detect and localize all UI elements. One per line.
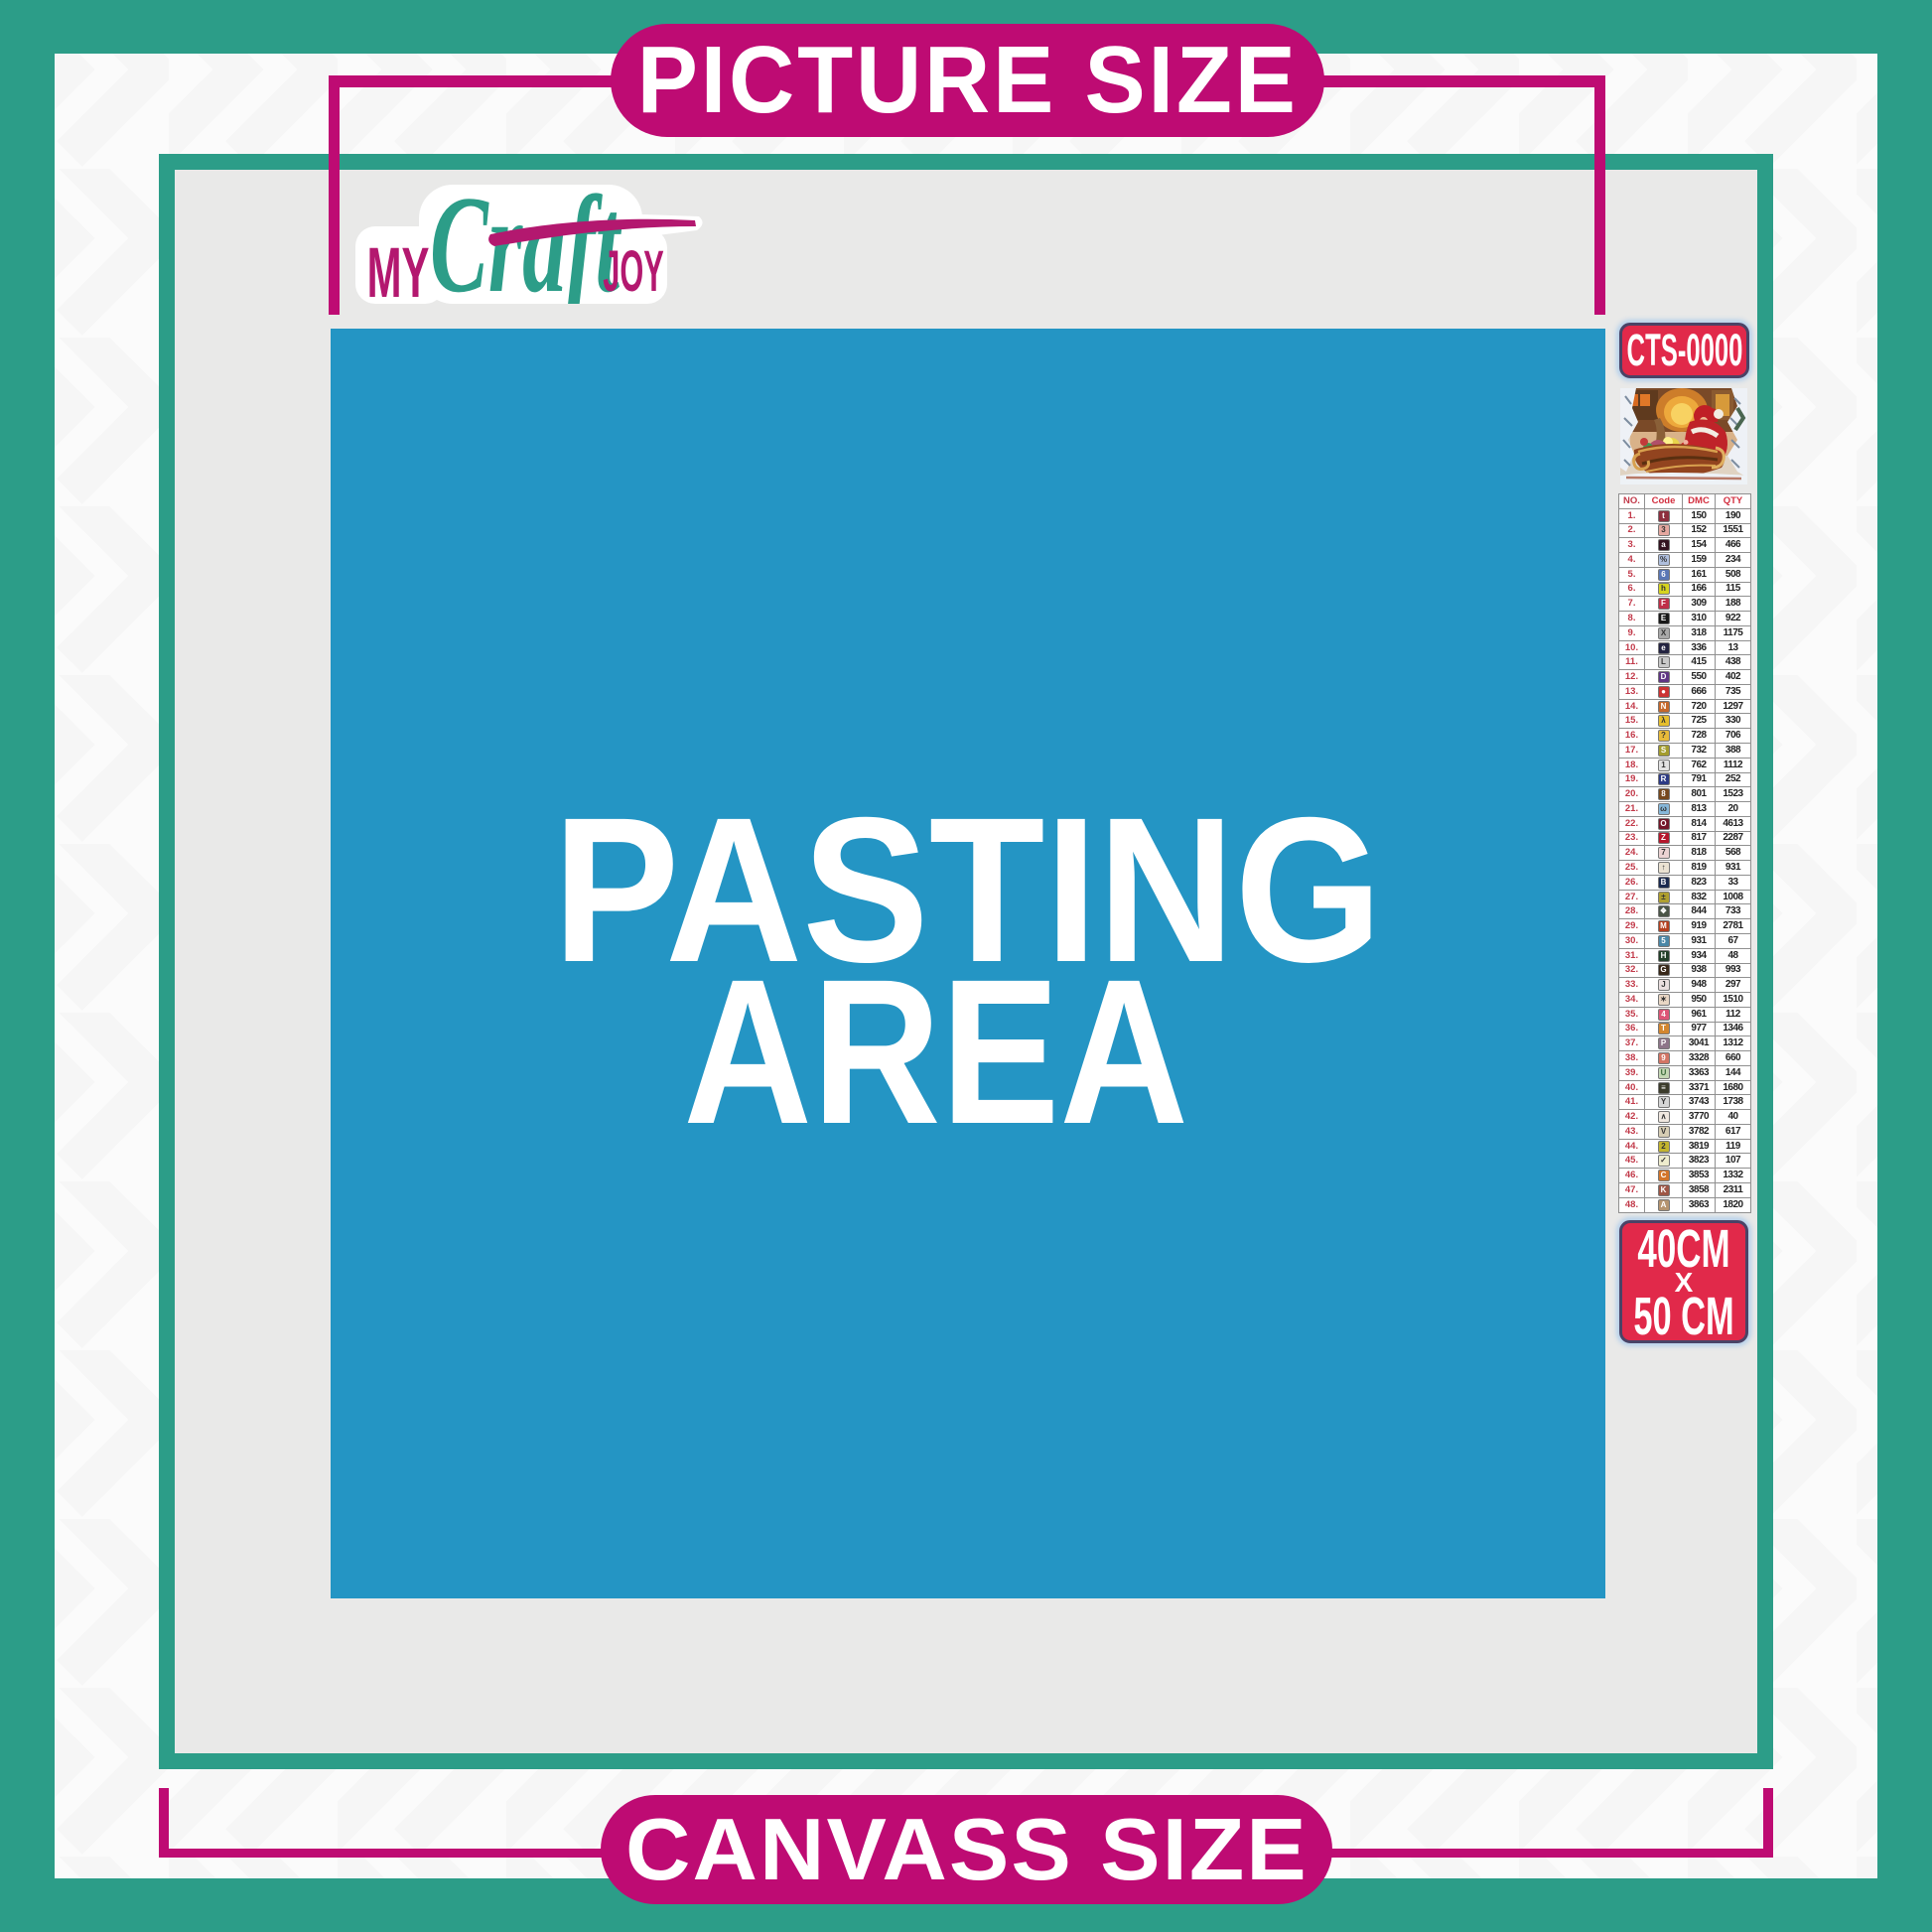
svg-text:Craft: Craft (430, 179, 622, 313)
svg-text:JOY: JOY (603, 239, 664, 304)
svg-text:MY: MY (367, 234, 430, 313)
